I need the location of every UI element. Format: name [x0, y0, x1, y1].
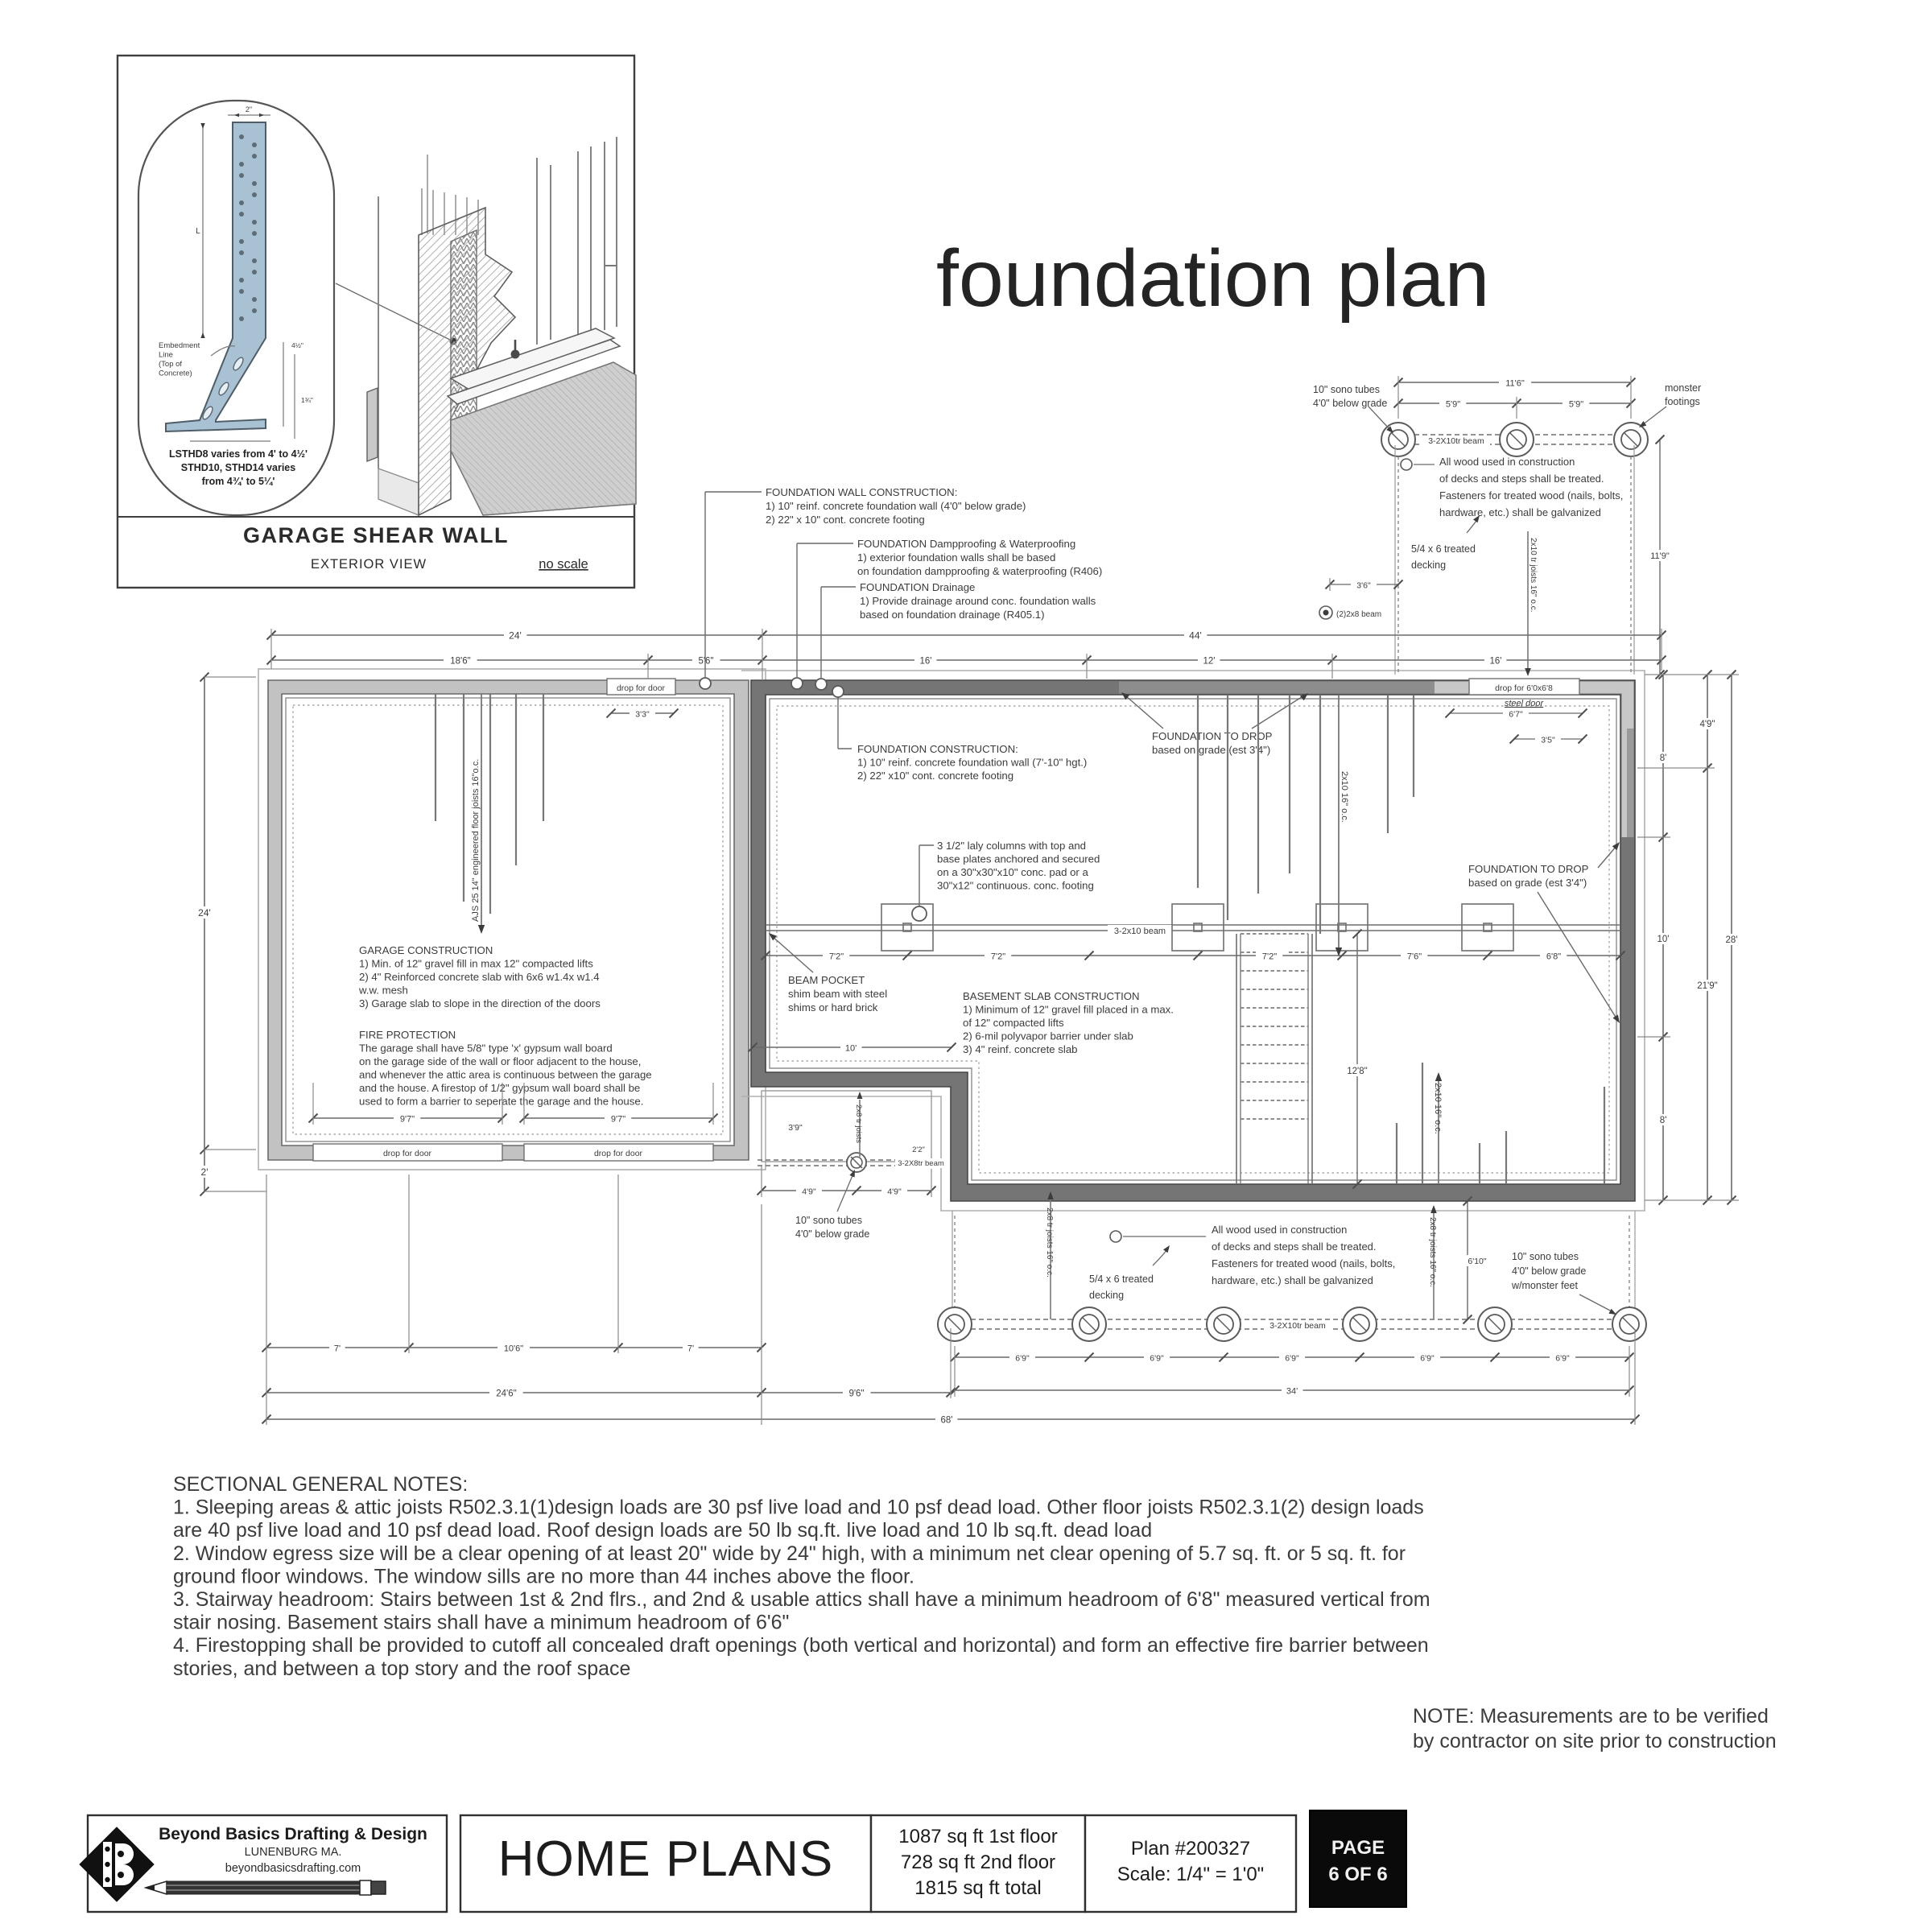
svg-text:10" sono tubes: 10" sono tubes: [795, 1215, 862, 1226]
svg-text:FOUNDATION CONSTRUCTION:: FOUNDATION CONSTRUCTION:: [857, 743, 1018, 755]
svg-text:drop for door: drop for door: [617, 683, 666, 693]
svg-text:shims or hard brick: shims or hard brick: [788, 1001, 878, 1013]
svg-text:2x8 tr joists: 2x8 tr joists: [854, 1104, 863, 1143]
svg-text:Scale: 1/4" = 1'0": Scale: 1/4" = 1'0": [1117, 1864, 1264, 1885]
svg-text:4'0" below grade: 4'0" below grade: [795, 1228, 869, 1240]
svg-text:2'2": 2'2": [912, 1146, 925, 1154]
svg-text:1¾": 1¾": [301, 396, 313, 404]
svg-text:2. Window egress size will be: 2. Window egress size will be a clear op…: [173, 1542, 1406, 1565]
svg-text:of decks and steps shall be tr: of decks and steps shall be treated.: [1212, 1241, 1377, 1253]
svg-text:4'9": 4'9": [887, 1187, 902, 1197]
svg-text:24': 24': [198, 907, 211, 919]
svg-text:Embedment: Embedment: [159, 341, 200, 350]
svg-text:28': 28': [1726, 935, 1738, 945]
svg-text:Concrete): Concrete): [159, 369, 192, 378]
svg-text:footings: footings: [1665, 396, 1700, 407]
svg-text:AJS 25 14" engineered floor jo: AJS 25 14" engineered floor joists 16"o.…: [471, 759, 481, 922]
svg-text:FIRE PROTECTION: FIRE PROTECTION: [359, 1029, 456, 1041]
svg-text:7'2": 7'2": [829, 952, 844, 962]
svg-text:3. Stairway headroom: Stairs: 3. Stairway headroom: Stairs between 1st…: [173, 1588, 1430, 1611]
svg-text:6'10": 6'10": [1468, 1257, 1487, 1266]
svg-text:9'7": 9'7": [400, 1115, 415, 1125]
svg-text:no scale: no scale: [539, 557, 588, 572]
svg-text:5/4 x 6 treated: 5/4 x 6 treated: [1411, 543, 1476, 555]
svg-text:6'7": 6'7": [1509, 710, 1523, 720]
svg-text:10': 10': [845, 1044, 857, 1054]
svg-text:Fasteners for treated wood (na: Fasteners for treated wood (nails, bolts…: [1439, 489, 1623, 502]
svg-text:(2)2x8 beam: (2)2x8 beam: [1336, 610, 1381, 619]
svg-text:PAGE: PAGE: [1331, 1837, 1385, 1859]
svg-text:SECTIONAL GENERAL NOTES:: SECTIONAL GENERAL NOTES:: [173, 1473, 468, 1496]
svg-text:GARAGE SHEAR WALL: GARAGE SHEAR WALL: [243, 523, 509, 547]
svg-text:FOUNDATION WALL CONSTRUCTION:: FOUNDATION WALL CONSTRUCTION:: [766, 486, 957, 498]
svg-text:44': 44': [1189, 630, 1202, 642]
svg-text:on a 30"x30"x10" conc. pad or: on a 30"x30"x10" conc. pad or a: [937, 866, 1088, 878]
svg-text:Plan #200327: Plan #200327: [1131, 1838, 1250, 1860]
svg-text:w/monster feet: w/monster feet: [1511, 1280, 1579, 1291]
svg-text:EXTERIOR VIEW: EXTERIOR VIEW: [311, 557, 427, 572]
svg-text:used to form a barrier to sepe: used to form a barrier to seperate the g…: [359, 1096, 643, 1108]
svg-text:2) 6-mil polyvapor barrier und: 2) 6-mil polyvapor barrier under slab: [963, 1030, 1133, 1042]
svg-text:7'2": 7'2": [991, 952, 1005, 962]
svg-text:decking: decking: [1411, 559, 1446, 571]
svg-text:by contractor on site prior to: by contractor on site prior to construct…: [1413, 1730, 1777, 1752]
svg-text:NOTE: Measurements are to be: NOTE: Measurements are to be verified: [1413, 1705, 1769, 1728]
svg-text:3'6": 3'6": [1356, 581, 1371, 591]
svg-text:(Top of: (Top of: [159, 360, 182, 369]
svg-text:decking: decking: [1089, 1290, 1124, 1301]
svg-text:11'6": 11'6": [1505, 379, 1525, 389]
svg-text:3) Garage slab to slope in the: 3) Garage slab to slope in the direction…: [359, 997, 601, 1009]
svg-text:1) Minimum of 12" gravel fill: 1) Minimum of 12" gravel fill placed in …: [963, 1004, 1174, 1016]
svg-text:7': 7': [334, 1344, 341, 1354]
svg-text:All wood used in construction: All wood used in construction: [1439, 456, 1575, 468]
svg-text:L: L: [196, 227, 200, 236]
svg-text:based on foundation drainage (: based on foundation drainage (R405.1): [860, 609, 1045, 621]
svg-text:1815 sq ft total: 1815 sq ft total: [914, 1877, 1041, 1899]
svg-text:4'9": 4'9": [802, 1187, 816, 1197]
svg-text:1) 10" reinf. concrete foundat: 1) 10" reinf. concrete foundation wall (…: [766, 500, 1026, 512]
svg-text:2x8 tr joists 16" o.c.: 2x8 tr joists 16" o.c.: [1428, 1217, 1437, 1287]
svg-text:34': 34': [1286, 1387, 1298, 1397]
svg-text:1) 10" reinf. concrete foundat: 1) 10" reinf. concrete foundation wall (…: [857, 757, 1087, 769]
svg-text:FOUNDATION Drainage: FOUNDATION Drainage: [860, 581, 975, 593]
svg-text:drop for 6'0x6'8: drop for 6'0x6'8: [1495, 683, 1553, 693]
svg-text:3) 4" reinf. concrete slab: 3) 4" reinf. concrete slab: [963, 1043, 1078, 1055]
svg-text:steel door: steel door: [1505, 699, 1545, 708]
svg-text:728 sq ft 2nd floor: 728 sq ft 2nd floor: [901, 1851, 1055, 1873]
svg-text:base plates anchored and secur: base plates anchored and secured: [937, 853, 1100, 865]
svg-text:10'6": 10'6": [504, 1344, 523, 1354]
svg-text:1087 sq ft 1st floor: 1087 sq ft 1st floor: [898, 1826, 1057, 1847]
svg-text:w.w. mesh: w.w. mesh: [358, 985, 408, 997]
svg-text:10" sono tubes: 10" sono tubes: [1313, 384, 1380, 395]
svg-text:BASEMENT SLAB CONSTRUCTION: BASEMENT SLAB CONSTRUCTION: [963, 990, 1140, 1002]
svg-text:5'6": 5'6": [698, 657, 713, 667]
svg-text:6'8": 6'8": [1546, 952, 1561, 962]
svg-text:based on grade (est 3'4"): based on grade (est 3'4"): [1152, 744, 1270, 756]
svg-text:ground floor windows. The wind: ground floor windows. The window sills a…: [173, 1565, 914, 1587]
svg-text:3 1/2" laly columns with top a: 3 1/2" laly columns with top and: [937, 840, 1086, 852]
svg-text:4. Firestopping shall be prov: 4. Firestopping shall be provided to cut…: [173, 1634, 1429, 1657]
svg-text:2x10 16" o.c.: 2x10 16" o.c.: [1340, 771, 1349, 823]
svg-text:3'3": 3'3": [635, 710, 650, 720]
svg-text:STHD10, STHD14 varies: STHD10, STHD14 varies: [181, 462, 295, 473]
svg-text:of decks and steps shall be tr: of decks and steps shall be treated.: [1439, 473, 1604, 485]
svg-text:4'0" below grade: 4'0" below grade: [1313, 398, 1387, 409]
svg-text:7'2": 7'2": [1262, 952, 1277, 962]
svg-text:Line: Line: [159, 351, 173, 360]
svg-text:1. Sleeping areas & attic joi: 1. Sleeping areas & attic joists R502.3.…: [173, 1496, 1424, 1519]
svg-text:based on grade (est 3'4"): based on grade (est 3'4"): [1468, 877, 1587, 889]
svg-text:Beyond Basics Drafting & Desig: Beyond Basics Drafting & Design: [159, 1825, 427, 1843]
svg-text:stair nosing. Basement stairs: stair nosing. Basement stairs shall have…: [173, 1612, 789, 1634]
svg-text:10" sono tubes: 10" sono tubes: [1512, 1251, 1579, 1262]
svg-text:1) Provide drainage around con: 1) Provide drainage around conc. foundat…: [860, 595, 1096, 607]
svg-text:stories, and between a top sto: stories, and between a top story and the…: [173, 1657, 630, 1680]
svg-text:FOUNDATION TO DROP: FOUNDATION TO DROP: [1152, 730, 1273, 742]
svg-text:5'9": 5'9": [1569, 400, 1583, 410]
svg-text:8': 8': [1660, 753, 1667, 763]
svg-text:9'6": 9'6": [848, 1389, 864, 1399]
svg-text:drop for door: drop for door: [383, 1149, 432, 1158]
svg-text:3-2X10tr beam: 3-2X10tr beam: [1428, 436, 1484, 446]
svg-text:1) exterior foundation walls s: 1) exterior foundation walls shall be ba…: [857, 551, 1055, 563]
svg-text:2x8 tr joists 16" o.c.: 2x8 tr joists 16" o.c.: [1045, 1207, 1054, 1278]
svg-text:4½": 4½": [291, 341, 303, 349]
svg-text:FOUNDATION TO DROP: FOUNDATION TO DROP: [1468, 863, 1589, 875]
svg-text:drop for door: drop for door: [594, 1149, 643, 1158]
svg-text:1) Min. of 12" gravel fill in: 1) Min. of 12" gravel fill in max 12" co…: [359, 958, 593, 970]
svg-text:2) 22" x10" cont. concrete foo: 2) 22" x10" cont. concrete footing: [857, 770, 1013, 782]
svg-text:shim beam with steel: shim beam with steel: [788, 988, 887, 1000]
svg-text:7': 7': [687, 1344, 694, 1354]
svg-text:All wood used in construction: All wood used in construction: [1212, 1224, 1347, 1236]
svg-text:9'7": 9'7": [611, 1115, 625, 1125]
svg-text:3-2x10 beam: 3-2x10 beam: [1114, 927, 1166, 936]
svg-text:5'9": 5'9": [1446, 400, 1460, 410]
svg-text:6'9": 6'9": [1285, 1354, 1299, 1364]
svg-text:HOME PLANS: HOME PLANS: [498, 1831, 834, 1887]
svg-text:FOUNDATION Dampproofing & Wate: FOUNDATION Dampproofing & Waterproofing: [857, 538, 1075, 550]
svg-text:on foundation dampproofing & w: on foundation dampproofing & waterproofi…: [857, 565, 1102, 577]
svg-text:LSTHD8 varies from 4' to 4½': LSTHD8 varies from 4' to 4½': [169, 448, 308, 460]
svg-text:GARAGE CONSTRUCTION: GARAGE CONSTRUCTION: [359, 944, 493, 956]
svg-text:7'6": 7'6": [1407, 952, 1422, 962]
svg-text:6'9": 6'9": [1150, 1354, 1164, 1364]
svg-text:2x10 16" o.c.: 2x10 16" o.c.: [1433, 1083, 1443, 1134]
svg-text:and the house. A firestop of: and the house. A firestop of 1/2" gypsum…: [359, 1082, 640, 1094]
svg-text:16': 16': [920, 657, 932, 667]
svg-text:2': 2': [201, 1166, 208, 1178]
svg-text:6'9": 6'9": [1420, 1354, 1435, 1364]
svg-text:Fasteners for treated wood (na: Fasteners for treated wood (nails, bolts…: [1212, 1257, 1395, 1269]
svg-text:6'9": 6'9": [1015, 1354, 1030, 1364]
svg-text:on the garage side of the wall: on the garage side of the wall or floor …: [359, 1055, 641, 1067]
svg-text:BEAM POCKET: BEAM POCKET: [788, 974, 865, 986]
svg-text:2) 4" Reinforced concrete slab: 2) 4" Reinforced concrete slab with 6x6 …: [359, 971, 600, 983]
svg-text:8': 8': [1660, 1116, 1667, 1125]
svg-text:2) 22" x 10" cont. concrete fo: 2) 22" x 10" cont. concrete footing: [766, 514, 925, 526]
svg-text:2": 2": [246, 105, 252, 114]
svg-text:21'9": 21'9": [1697, 981, 1717, 991]
svg-text:12'8": 12'8": [1347, 1067, 1367, 1076]
svg-text:18'6": 18'6": [450, 657, 470, 667]
svg-text:24': 24': [509, 630, 522, 642]
svg-text:10': 10': [1657, 935, 1670, 944]
svg-text:LUNENBURG MA.: LUNENBURG MA.: [245, 1846, 342, 1859]
svg-text:beyondbasicsdrafting.com: beyondbasicsdrafting.com: [225, 1862, 361, 1875]
svg-text:5/4 x 6 treated: 5/4 x 6 treated: [1089, 1274, 1154, 1285]
svg-text:2x10 tr joists 16" o.c.: 2x10 tr joists 16" o.c.: [1529, 538, 1538, 612]
svg-text:16': 16': [1490, 657, 1502, 667]
svg-text:from 4¾' to 5¼': from 4¾' to 5¼': [202, 476, 275, 487]
svg-text:The garage shall have 5/8" typ: The garage shall have 5/8" type 'x' gyps…: [359, 1042, 613, 1055]
svg-text:4'0" below grade: 4'0" below grade: [1512, 1265, 1586, 1277]
svg-text:hardware, etc.) shall be galva: hardware, etc.) shall be galvanized: [1439, 506, 1601, 518]
svg-text:3-2X10tr beam: 3-2X10tr beam: [1269, 1321, 1326, 1331]
svg-text:3-2X8tr beam: 3-2X8tr beam: [898, 1159, 944, 1168]
svg-text:are 40 psf live load and 10 ps: are 40 psf live load and 10 psf dead loa…: [173, 1519, 1152, 1542]
svg-text:foundation plan: foundation plan: [936, 233, 1489, 324]
svg-text:3'5": 3'5": [1541, 736, 1555, 745]
svg-text:24'6": 24'6": [496, 1389, 516, 1399]
svg-text:hardware, etc.) shall be galva: hardware, etc.) shall be galvanized: [1212, 1274, 1373, 1286]
svg-text:3'9": 3'9": [788, 1123, 803, 1133]
svg-text:4'9": 4'9": [1699, 720, 1715, 729]
svg-text:6'9": 6'9": [1555, 1354, 1570, 1364]
svg-text:monster: monster: [1665, 382, 1701, 394]
svg-text:68': 68': [941, 1416, 953, 1426]
svg-text:12': 12': [1203, 657, 1216, 667]
svg-text:30"x12" continuous. conc. foot: 30"x12" continuous. conc. footing: [937, 880, 1094, 892]
svg-text:6 OF 6: 6 OF 6: [1328, 1864, 1387, 1885]
svg-text:11'9": 11'9": [1650, 551, 1670, 561]
svg-text:of 12" compacted lifts: of 12" compacted lifts: [963, 1017, 1064, 1029]
svg-text:and whenever the attic area is: and whenever the attic area is continuou…: [359, 1069, 652, 1081]
